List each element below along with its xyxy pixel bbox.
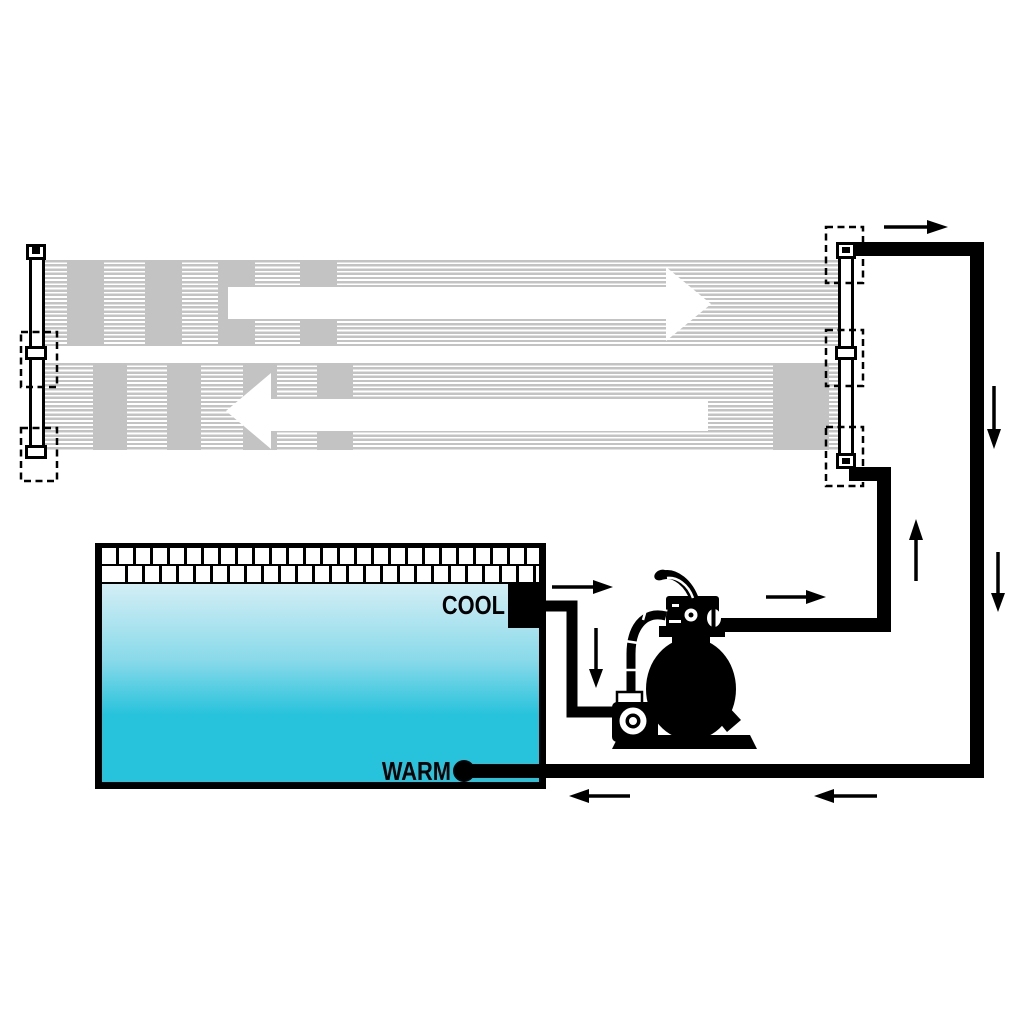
manifold-end-cap — [26, 244, 46, 260]
motor-inlet-collar — [617, 692, 642, 704]
flow-arrow-warm-return-left-inner — [569, 789, 630, 803]
hose-segment-mark — [643, 606, 647, 620]
sand-filter-pump — [612, 568, 757, 749]
flow-arrow-panel-outlet-right — [884, 220, 948, 234]
valve-neck — [672, 632, 710, 646]
pool-tile-row — [102, 548, 539, 564]
tank-drain-spigot — [714, 705, 741, 732]
pump-motor — [612, 702, 658, 742]
valve-detail — [672, 604, 679, 607]
pump-base — [612, 735, 757, 749]
valve-side-port — [707, 609, 721, 627]
pool-tile-row — [102, 566, 539, 582]
valve-side-port-bar — [712, 608, 716, 627]
flow-arrow-pump-discharge-right — [766, 590, 826, 604]
panel-absorber-row-top — [44, 260, 839, 346]
pump-base-notch — [617, 737, 643, 742]
flow-arrow-pool-suction-right — [552, 580, 613, 594]
cool-label: COOL — [404, 592, 505, 618]
flow-arrow-return-riser-down-upper — [987, 386, 1001, 449]
manifold-coupler — [835, 346, 857, 360]
motor-face-hub — [629, 717, 637, 725]
multiport-valve — [666, 596, 719, 630]
flow-arrow-supply-riser-up — [909, 519, 923, 581]
manifold-elbow-bottom — [836, 453, 856, 469]
motor-face-inner — [626, 714, 641, 729]
cool-outlet-block — [508, 584, 546, 628]
panel-absorber-row-bottom — [44, 363, 839, 450]
valve-detail — [669, 620, 681, 623]
manifold-elbow-top — [836, 242, 856, 259]
valve-handle-highlight — [667, 578, 693, 598]
manifold-plug — [842, 458, 850, 464]
filter-tank — [646, 638, 736, 740]
valve-gauge-center — [689, 613, 694, 618]
diagram-canvas: COOL WARM — [0, 0, 1024, 1024]
valve-handle — [663, 575, 695, 601]
pool — [95, 543, 546, 789]
manifold-coupler — [25, 445, 47, 459]
valve-handle-grip — [653, 568, 670, 583]
valve-flange — [659, 626, 725, 637]
panel-overlay-layer — [0, 0, 1024, 1024]
flow-arrow-return-riser-down-lower — [991, 552, 1005, 612]
valve-gauge — [685, 609, 698, 622]
flow-arrow-warm-return-left-outer — [814, 789, 877, 803]
manifold-plug — [842, 247, 850, 253]
pipe-cool-suction — [540, 606, 642, 712]
hose-segment-mark — [625, 641, 638, 643]
pump-hose — [631, 615, 666, 697]
manifold-coupler — [25, 346, 47, 360]
pipe-pump-to-panel — [714, 474, 884, 625]
flow-arrow-suction-drop-down — [589, 628, 603, 688]
piping-layer — [0, 0, 1024, 1024]
manifold-plug — [32, 247, 40, 254]
pool-tile-border — [102, 548, 539, 584]
warm-label: WARM — [350, 758, 451, 784]
motor-face-ring — [620, 708, 647, 735]
pump-hose-casing — [631, 615, 666, 697]
